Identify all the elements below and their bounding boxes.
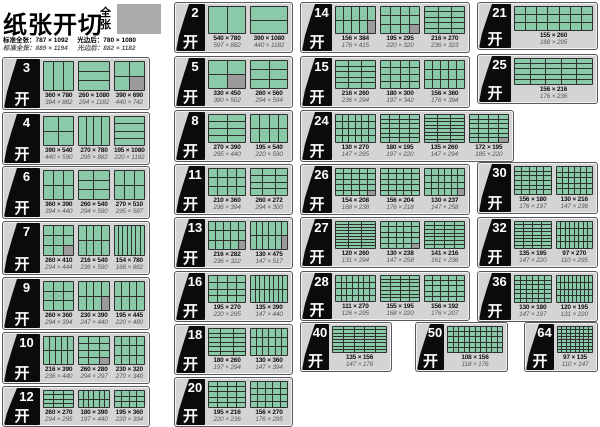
paper-piece [537, 190, 543, 194]
paper-piece [381, 82, 390, 88]
paper-piece [584, 350, 587, 352]
size-large: 394 × 882 [43, 99, 74, 106]
panel-27-kai: 27开120 × 260131 × 294130 × 238147 × 2581… [300, 217, 470, 268]
paper-piece [410, 138, 419, 142]
paper-piece [115, 397, 122, 402]
paper-piece [273, 389, 279, 395]
paper-piece [336, 231, 348, 233]
paper-piece [397, 180, 404, 184]
size-standard: 195 × 1080 [114, 147, 145, 154]
paper-piece [391, 68, 400, 74]
paper-piece [557, 242, 561, 248]
paper-piece [336, 115, 342, 121]
paper-piece [425, 80, 432, 88]
paper-piece [401, 7, 410, 15]
cut-layout: 390 × 1080440 × 1182 [250, 6, 288, 50]
paper-piece [441, 61, 448, 69]
paper-piece [561, 296, 564, 302]
paper-piece [479, 120, 488, 124]
layout-list: 260 × 410294 × 444216 × 540236 × 590154 … [40, 223, 148, 273]
paper-piece [362, 115, 368, 121]
paper-piece [515, 299, 520, 303]
paper-piece [115, 356, 122, 364]
paper-piece [524, 239, 532, 241]
paper-piece [94, 171, 108, 180]
panel-number: 21 [488, 5, 511, 20]
cut-diagram [250, 114, 288, 143]
paper-piece [533, 290, 538, 294]
paper-piece [376, 327, 386, 329]
page-curl-flag: 28开 [302, 273, 332, 319]
size-labels: 154 × 208168 × 238 [335, 196, 376, 212]
size-large: 440 × 742 [114, 99, 145, 106]
paper-piece [343, 122, 349, 128]
paper-piece [360, 169, 367, 173]
paper-piece [276, 338, 281, 346]
paper-piece [449, 297, 456, 301]
page-curl-flag: 5开 [176, 58, 205, 106]
paper-piece [347, 283, 352, 289]
paper-piece [270, 80, 288, 88]
paper-piece [570, 229, 574, 235]
paper-piece [347, 289, 352, 295]
size-labels: 135 × 156147 × 176 [332, 353, 387, 369]
panel-number: 11 [185, 167, 205, 182]
cut-layout: 156 × 192176 × 207 [424, 275, 465, 318]
paper-piece [401, 25, 410, 33]
size-large: 176 × 197 [514, 203, 552, 210]
paper-piece [451, 126, 463, 129]
paper-piece [575, 229, 579, 235]
paper-piece [448, 343, 453, 347]
cut-layout: 195 × 360220 × 394 [114, 390, 145, 424]
paper-piece [359, 289, 364, 295]
paper-piece [457, 297, 464, 301]
paper-piece [216, 222, 222, 230]
paper-piece [87, 226, 94, 240]
page-curl-flag: 12开 [4, 388, 40, 425]
paper-piece [565, 276, 568, 282]
paper-piece [362, 228, 374, 230]
paper-piece [251, 276, 255, 289]
paper-piece [336, 289, 341, 295]
waste-piece [368, 191, 375, 195]
paper-piece [333, 334, 343, 336]
paper-piece [344, 191, 351, 195]
paper-piece [50, 351, 55, 364]
paper-piece [533, 236, 541, 238]
paper-piece [476, 337, 481, 341]
paper-piece [94, 181, 108, 190]
paper-piece [459, 343, 464, 347]
paper-piece [439, 176, 445, 182]
size-large: 394 × 440 [43, 208, 74, 215]
paper-piece [575, 222, 579, 228]
kai-label: 开 [176, 86, 205, 107]
panel-number: 5 [185, 59, 205, 74]
paper-piece [492, 327, 497, 331]
paper-piece [136, 226, 139, 255]
paper-piece [251, 347, 256, 355]
cut-diagram [43, 116, 74, 146]
paper-piece [589, 337, 592, 339]
size-labels: 130 × 270147 × 295 [335, 143, 376, 159]
paper-piece [537, 186, 543, 190]
paper-piece [576, 350, 579, 352]
cut-diagram [556, 166, 594, 195]
paper-piece [531, 80, 546, 84]
paper-piece [569, 276, 572, 282]
paper-piece [455, 237, 464, 240]
paper-piece [64, 292, 73, 301]
panel-number: 30 [488, 165, 511, 180]
panel-number: 15 [311, 59, 332, 74]
layout-list: 195 × 270220 × 295135 × 390147 × 440 [205, 273, 291, 320]
paper-piece [481, 332, 486, 336]
paper-piece [269, 347, 274, 355]
paper-piece [580, 330, 583, 332]
paper-piece [251, 189, 262, 195]
paper-piece [221, 343, 232, 347]
paper-piece [224, 222, 230, 230]
layout-list: 130 × 270147 × 295180 × 195197 × 220135 … [332, 112, 512, 160]
cut-layout: 230 × 390247 × 440 [78, 281, 109, 327]
paper-piece [544, 190, 550, 194]
size-large: 168 × 238 [335, 204, 376, 211]
paper-piece [349, 225, 361, 227]
paper-piece [221, 347, 232, 351]
paper-piece [410, 68, 419, 74]
paper-piece [410, 75, 419, 81]
paper-piece [448, 332, 453, 336]
paper-piece [333, 340, 343, 342]
paper-piece [343, 129, 349, 135]
paper-piece [397, 222, 404, 226]
cut-diagram [43, 225, 74, 256]
size-standard: 390 × 690 [114, 92, 145, 99]
paper-piece [410, 82, 419, 88]
size-large: 295 × 882 [78, 154, 109, 161]
paper-piece [566, 222, 570, 228]
paper-piece [251, 176, 262, 182]
size-large: 147 × 258 [424, 204, 465, 211]
cut-layout: 97 × 270110 × 295 [556, 221, 594, 265]
paper-piece [228, 403, 236, 407]
panel-number: 50 [426, 325, 444, 340]
paper-piece [524, 222, 532, 224]
paper-piece [438, 136, 450, 139]
layout-list: 195 × 216220 × 236156 × 270176 × 295 [205, 379, 291, 425]
cut-layout: 210 × 360236 × 394 [208, 168, 246, 212]
paper-piece [209, 129, 227, 135]
paper-piece [94, 400, 98, 408]
paper-piece [370, 296, 375, 302]
paper-piece [569, 283, 572, 289]
paper-piece [89, 400, 93, 408]
paper-piece [449, 276, 456, 280]
cut-diagram [380, 6, 421, 34]
paper-piece [487, 343, 492, 347]
paper-piece [465, 332, 470, 336]
cut-layout: 154 × 208168 × 238 [335, 168, 376, 212]
size-labels: 130 × 216147 × 236 [556, 195, 594, 211]
paper-piece [545, 281, 550, 285]
paper-piece [401, 298, 410, 301]
paper-piece [273, 395, 279, 401]
cut-diagram [380, 60, 421, 89]
size-standard: 156 × 180 [514, 196, 552, 203]
paper-piece [389, 180, 396, 184]
paper-piece [573, 290, 576, 296]
panel-15-kai: 15开216 × 260236 × 294180 × 300197 × 3421… [300, 56, 470, 108]
paper-piece [115, 77, 129, 91]
cut-diagram [208, 381, 246, 408]
size-standard: 270 × 390 [208, 144, 246, 151]
paper-piece [237, 392, 245, 396]
paper-piece [567, 337, 570, 339]
paper-piece [369, 115, 375, 121]
paper-piece [79, 282, 86, 296]
paper-piece [100, 351, 109, 357]
page-curl-flag: 26开 [302, 166, 332, 213]
paper-piece [347, 296, 352, 302]
paper-piece [234, 334, 245, 338]
paper-piece [336, 185, 343, 189]
paper-piece [451, 115, 463, 118]
paper-piece [79, 400, 83, 408]
cut-layout: 260 × 1080294 × 1182 [78, 61, 109, 107]
paper-piece [251, 389, 257, 395]
paper-piece [228, 136, 246, 142]
size-standard: 97 × 270 [556, 250, 594, 257]
cut-layout: 180 × 300197 × 342 [380, 60, 421, 105]
paper-piece [455, 241, 464, 244]
size-large: 197 × 440 [78, 416, 109, 423]
paper-piece [100, 344, 109, 350]
paper-piece [355, 337, 365, 339]
cut-layout: 260 × 360294 × 394 [43, 281, 74, 327]
cut-diagram [208, 60, 246, 89]
paper-piece [260, 276, 264, 289]
paper-piece [410, 7, 419, 15]
size-large: 294 × 444 [43, 264, 74, 271]
cut-diagram [114, 281, 145, 311]
paper-piece [64, 391, 73, 394]
paper-piece [557, 236, 561, 242]
paper-piece [433, 297, 440, 301]
paper-piece [445, 222, 454, 225]
paper-piece [410, 129, 419, 133]
paper-piece [569, 184, 574, 189]
paper-piece [581, 184, 586, 189]
paper-piece [270, 276, 274, 289]
paper-piece [563, 167, 568, 172]
paper-piece [122, 397, 129, 402]
paper-piece [266, 395, 272, 401]
paper-piece [381, 68, 390, 74]
paper-piece [404, 191, 411, 195]
paper-piece [237, 187, 245, 195]
paper-piece [115, 226, 118, 255]
size-standard: 270 × 780 [78, 147, 109, 154]
paper-piece [364, 283, 369, 289]
paper-piece [533, 294, 538, 298]
layout-list: 135 × 195147 × 22097 × 270110 × 295 [511, 219, 596, 266]
panel-11-kai: 11开210 × 360236 × 394260 × 272294 × 300 [174, 164, 293, 215]
paper-piece [492, 337, 497, 341]
paper-piece [347, 276, 352, 282]
paper-piece [381, 191, 388, 195]
cut-diagram [78, 390, 109, 408]
size-standard: 216 × 270 [424, 35, 465, 42]
paper-piece [544, 176, 550, 180]
kai-label: 开 [4, 405, 40, 426]
paper-piece [102, 226, 109, 240]
paper-piece [433, 70, 440, 78]
paper-piece [381, 7, 390, 15]
paper-piece [79, 297, 86, 311]
paper-piece [569, 167, 574, 172]
paper-piece [362, 225, 374, 227]
paper-piece [376, 350, 386, 352]
size-large: 294 × 295 [43, 416, 74, 423]
kai-label: 开 [479, 246, 511, 267]
cut-layout: 155 × 195168 × 220 [380, 275, 421, 318]
cut-diagram [335, 221, 376, 249]
size-labels: 270 × 390295 × 440 [208, 143, 246, 159]
paper-piece [465, 327, 470, 331]
paper-piece [448, 327, 453, 331]
paper-piece [531, 75, 546, 79]
paper-piece [237, 398, 245, 402]
paper-piece [94, 391, 98, 399]
paper-piece [54, 246, 63, 255]
panel-30-kai: 30开156 × 180176 × 197130 × 216147 × 236 [477, 162, 598, 214]
paper-piece [221, 334, 232, 338]
paper-piece [370, 283, 375, 289]
paper-piece [577, 69, 592, 73]
cut-layout: 260 × 560294 × 594 [250, 60, 288, 105]
paper-piece [344, 7, 351, 20]
paper-piece [454, 327, 459, 331]
paper-piece [521, 294, 526, 298]
paper-piece [364, 289, 369, 295]
paper-piece [79, 171, 93, 180]
paper-piece [209, 61, 227, 74]
cut-diagram [43, 281, 74, 311]
panel-26-kai: 26开154 × 208168 × 238156 × 204176 × 2181… [300, 164, 470, 215]
paper-piece [400, 138, 409, 142]
cut-layout: 108 × 156118 × 176 [447, 326, 503, 369]
paper-piece [349, 222, 361, 224]
size-labels: 360 × 780394 × 882 [43, 91, 74, 107]
paper-piece [561, 290, 564, 296]
size-large: 147 × 517 [250, 258, 288, 265]
cut-diagram [514, 166, 552, 195]
paper-piece [459, 332, 464, 336]
paper-piece [481, 327, 486, 331]
panel-36-kai: 36开130 × 180147 × 197120 × 195131 × 220 [477, 271, 598, 322]
paper-piece [515, 176, 521, 180]
paper-piece [218, 403, 226, 407]
paper-piece [218, 387, 226, 391]
paper-piece [522, 181, 528, 185]
size-labels: 260 × 272294 × 300 [250, 196, 288, 212]
page-curl-flag: 14开 [302, 4, 332, 51]
size-labels: 195 × 540220 × 590 [250, 143, 288, 159]
paper-piece [557, 222, 561, 228]
paper-piece [452, 176, 458, 182]
panel-number: 25 [488, 57, 511, 72]
paper-piece [425, 230, 434, 233]
paper-piece [565, 296, 568, 302]
size-labels: 216 × 282236 × 322 [208, 250, 246, 266]
paper-piece [584, 327, 587, 329]
cut-layout: 130 × 360147 × 394 [250, 328, 288, 372]
paper-piece [569, 189, 574, 194]
paper-piece [352, 191, 359, 195]
waste-piece [458, 189, 464, 195]
paper-piece [276, 189, 287, 195]
paper-piece [130, 62, 144, 76]
paper-piece [130, 397, 137, 402]
paper-piece [400, 134, 409, 138]
paper-piece [433, 292, 440, 296]
cut-diagram [380, 114, 421, 143]
paper-piece [115, 186, 124, 200]
kai-label: 开 [176, 300, 205, 321]
paper-piece [452, 7, 464, 11]
cut-layout: 230 × 320270 × 340 [114, 336, 145, 381]
paper-piece [449, 80, 456, 88]
paper-piece [577, 64, 592, 68]
paper-piece [218, 296, 226, 302]
paper-piece [263, 329, 268, 337]
paper-piece [355, 327, 365, 329]
page-curl-flag: 25开 [479, 56, 511, 102]
size-labels: 390 × 1080440 × 1182 [250, 34, 288, 50]
size-labels: 180 × 195197 × 220 [380, 143, 421, 159]
cut-layout: 156 × 216176 × 236 [514, 58, 593, 101]
paper-piece [498, 343, 503, 347]
paper-piece [445, 183, 451, 189]
paper-piece [527, 290, 532, 294]
paper-piece [557, 189, 562, 194]
paper-piece [558, 340, 561, 342]
paper-piece [209, 352, 220, 356]
paper-piece [125, 171, 134, 185]
paper-piece [344, 180, 351, 184]
paper-piece [452, 189, 458, 195]
paper-piece [470, 120, 479, 124]
size-standard: 195 × 360 [114, 409, 145, 416]
cut-layout: 172 × 195185 × 220 [469, 114, 510, 159]
paper-piece [376, 343, 386, 345]
paper-piece [515, 242, 523, 244]
page-curl-flag: 2开 [176, 4, 205, 51]
paper-piece [237, 276, 245, 282]
cut-layout: 130 × 237147 × 258 [424, 168, 465, 212]
paper-piece [449, 286, 456, 290]
paper-piece [344, 327, 354, 329]
paper-piece [470, 348, 475, 352]
paper-piece [257, 329, 262, 337]
paper-piece [481, 348, 486, 352]
paper-piece [499, 124, 508, 128]
paper-piece [94, 241, 101, 255]
paper-piece [362, 240, 374, 242]
paper-piece [228, 382, 236, 386]
